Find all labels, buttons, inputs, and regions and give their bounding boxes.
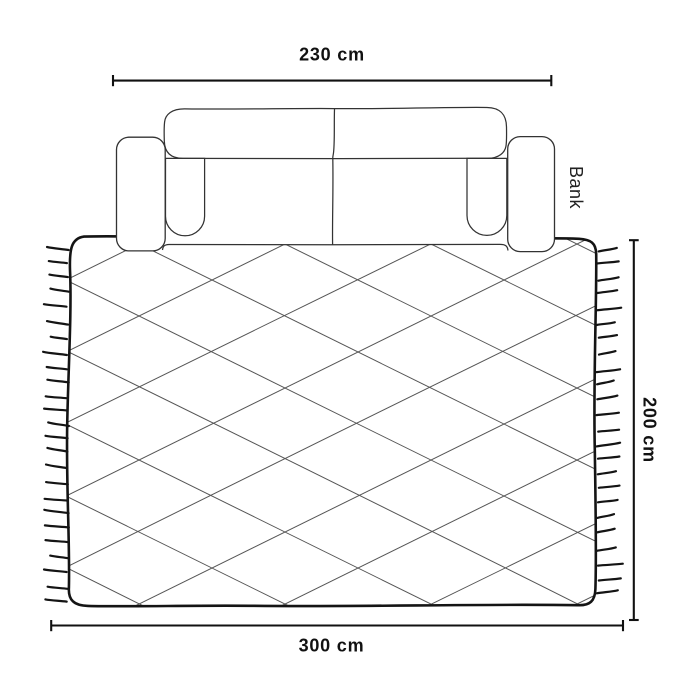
svg-text:230 cm: 230 cm bbox=[299, 45, 365, 65]
svg-text:Bank: Bank bbox=[566, 166, 586, 210]
svg-text:300 cm: 300 cm bbox=[299, 636, 365, 656]
svg-text:200 cm: 200 cm bbox=[640, 397, 660, 463]
